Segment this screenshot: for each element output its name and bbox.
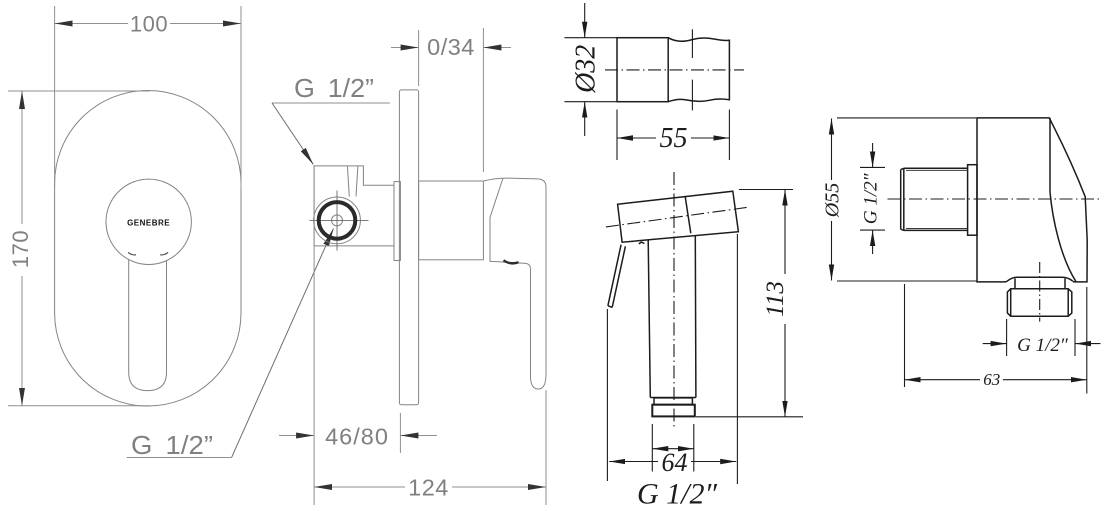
svg-text:G 1/2”: G 1/2” <box>131 430 213 460</box>
svg-text:G 1/2″: G 1/2″ <box>861 172 882 224</box>
svg-text:170: 170 <box>8 230 33 268</box>
svg-text:63: 63 <box>983 370 1000 389</box>
svg-text:Ø32: Ø32 <box>571 45 602 94</box>
svg-text:124: 124 <box>408 475 449 501</box>
svg-text:G 1/2″: G 1/2″ <box>637 478 718 511</box>
svg-text:100: 100 <box>130 12 168 37</box>
svg-text:46/80: 46/80 <box>325 424 389 450</box>
svg-text:64: 64 <box>662 448 688 477</box>
svg-text:113: 113 <box>762 281 789 317</box>
svg-text:Ø55: Ø55 <box>822 183 844 218</box>
svg-text:55: 55 <box>660 123 688 154</box>
svg-text:G 1/2″: G 1/2″ <box>1017 335 1069 356</box>
svg-text:GENEBRE: GENEBRE <box>127 219 170 228</box>
svg-text:0/34: 0/34 <box>427 34 475 60</box>
svg-text:G 1/2”: G 1/2” <box>294 73 374 103</box>
